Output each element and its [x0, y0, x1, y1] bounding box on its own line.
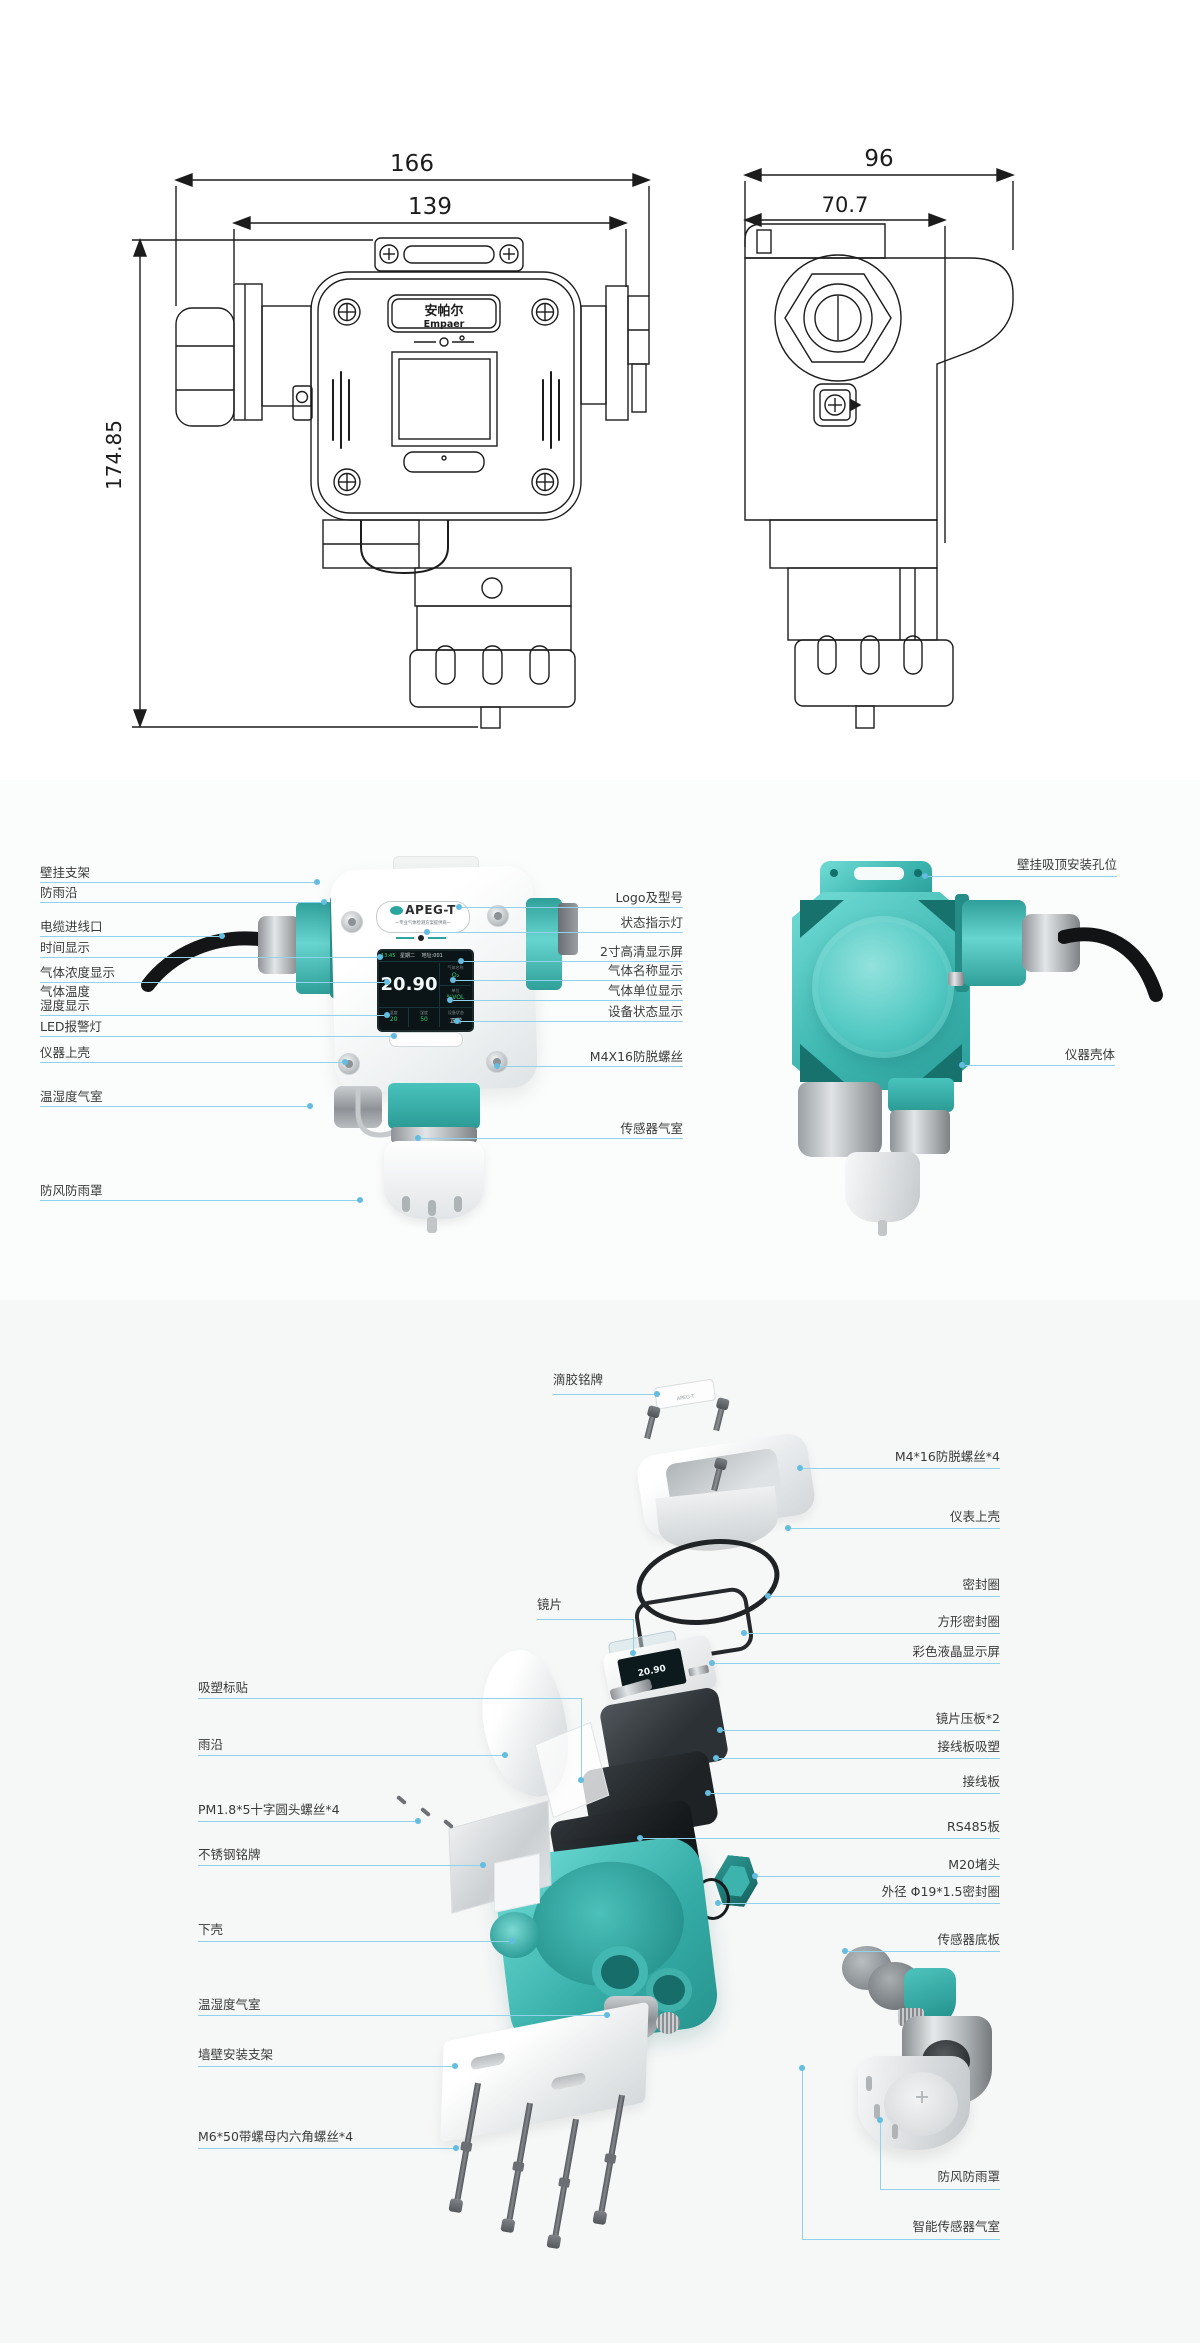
callout-board-blister: 接线板吸塑	[740, 1740, 1000, 1754]
callout-dot	[219, 933, 225, 939]
callout-line	[803, 1468, 1000, 1469]
callout-gas-name-display: 气体名称显示	[443, 964, 683, 978]
display-connector	[688, 1665, 709, 1677]
bracket-slot	[471, 2052, 505, 2071]
callout-th-chamber: 温湿度气室	[40, 1090, 103, 1104]
mount-hole	[830, 869, 838, 877]
callout-dot	[752, 1873, 758, 1879]
callout-dot	[959, 1062, 965, 1068]
callout-m4-screws: M4*16防脱螺丝*4	[740, 1450, 1000, 1464]
callout-line	[198, 2148, 459, 2149]
callout-dot	[452, 2063, 458, 2069]
callout-gas-unit-display: 气体单位显示	[443, 984, 683, 998]
callout-line	[456, 980, 683, 981]
callout-led-alarm: LED报警灯	[40, 1020, 102, 1034]
callout-line	[198, 1698, 582, 1699]
callout-dot	[342, 1059, 348, 1065]
callout-dot	[502, 1752, 508, 1758]
cover-slot	[892, 2124, 898, 2139]
screen-temp-value: 20	[379, 1016, 408, 1023]
callout-dot	[321, 899, 327, 905]
callout-dot	[604, 2012, 610, 2018]
callout-dot	[480, 1862, 486, 1868]
callout-lower-shell: 下壳	[198, 1923, 223, 1937]
callout-lens: 镜片	[537, 1598, 562, 1612]
callout-line	[643, 1838, 1000, 1839]
callout-dot	[391, 1033, 397, 1039]
callout-line	[965, 1065, 1115, 1066]
callout-cable-entry: 电缆进线口	[40, 920, 103, 934]
cover-slot	[866, 2076, 872, 2091]
product-documentation-page: 166 139 174.85 96 70.7 安帕尔 Empaer APEG-T…	[0, 0, 1200, 2343]
back-cover-circle	[812, 916, 954, 1058]
callout-meter-upper-shell: 仪表上壳	[740, 1510, 1000, 1524]
callout-line	[791, 1528, 1000, 1529]
callout-dot	[447, 997, 453, 1003]
callout-lens-plates: 镜片压板*2	[740, 1712, 1000, 1726]
callout-lcd: 彩色液晶显示屏	[740, 1645, 1000, 1659]
callout-line	[198, 2015, 610, 2016]
callout-m6-screws: M6*50带螺母内六角螺丝*4	[198, 2130, 353, 2144]
callout-line	[198, 1755, 508, 1756]
callout-line	[802, 2068, 803, 2239]
back-sensor-collar	[888, 1078, 954, 1112]
front-view-drawing	[176, 238, 649, 728]
status-led	[418, 935, 424, 941]
callout-dot	[415, 1135, 421, 1141]
callout-line	[198, 1821, 421, 1822]
callout-line	[719, 1758, 1000, 1759]
callout-hd-screen: 2寸高清显示屏	[443, 945, 683, 959]
callout-dot	[384, 1012, 390, 1018]
callout-dot	[357, 1197, 363, 1203]
callout-line	[802, 2239, 1000, 2240]
callout-instrument-housing: 仪器壳体	[895, 1048, 1115, 1062]
back-connector	[962, 900, 1026, 986]
callout-dot	[384, 979, 390, 985]
screen-main-value: 20.90	[379, 963, 439, 1007]
callout-dot	[654, 1391, 660, 1397]
cable-left	[140, 910, 270, 1000]
callout-line	[747, 1633, 1000, 1634]
dim-96: 96	[864, 146, 893, 172]
callout-time-display: 时间显示	[40, 941, 90, 955]
callout-rain-lip: 防雨沿	[40, 886, 78, 900]
callout-line	[711, 1793, 1000, 1794]
callout-dot	[578, 1777, 584, 1783]
callout-line	[40, 1106, 313, 1107]
shield-stem	[427, 1217, 437, 1233]
lower-label-pill	[389, 1032, 463, 1047]
callout-line	[40, 936, 225, 937]
callout-line	[460, 1021, 683, 1022]
callout-steel-nameplate: 不锈钢铭牌	[198, 1848, 261, 1862]
callout-dot	[715, 1900, 721, 1906]
wind-cover-part	[858, 2056, 970, 2150]
callout-rs485: RS485板	[740, 1820, 1000, 1834]
callout-line	[723, 1730, 1000, 1731]
callout-sensor-chamber: 传感器气室	[443, 1122, 683, 1136]
callout-line	[198, 1941, 515, 1942]
callout-square-seal: 方形密封圈	[740, 1615, 1000, 1629]
screen-hum-value: 50	[409, 1016, 438, 1023]
callout-d19-seal: 外径 Φ19*1.5密封圈	[740, 1885, 1000, 1899]
dim-70-7: 70.7	[822, 193, 869, 217]
callout-dot	[456, 904, 462, 910]
callout-line	[40, 957, 383, 958]
brand-logo-icon	[390, 906, 403, 915]
lower-shell-boss	[592, 1946, 648, 1998]
brand-name-cn: 安帕尔	[424, 303, 463, 319]
callout-seal-ring: 密封圈	[740, 1578, 1000, 1592]
callout-pm-screws: PM1.8*5十字圆头螺丝*4	[198, 1803, 340, 1817]
callout-line	[40, 1062, 348, 1063]
callout-dot	[424, 929, 430, 935]
callout-dot	[705, 1790, 711, 1796]
callout-line	[40, 1200, 363, 1201]
white-sheet-part	[494, 1853, 540, 1913]
back-sensor-ring	[890, 1110, 950, 1154]
callout-dot	[877, 2117, 883, 2123]
corner-screw	[338, 1053, 360, 1075]
callout-line	[40, 982, 390, 983]
callout-logo-model: Logo及型号	[443, 891, 683, 905]
shield-slot	[402, 1196, 410, 1212]
dimension-drawing: 166 139 174.85 96 70.7 安帕尔 Empaer	[0, 0, 1200, 780]
shield-slot	[454, 1196, 462, 1212]
callout-line	[40, 902, 327, 903]
callout-line	[198, 2066, 458, 2067]
callout-dot	[637, 1835, 643, 1841]
callout-dot	[717, 1727, 723, 1733]
callout-line	[721, 1903, 1000, 1904]
screen-time: 13:45	[381, 953, 395, 959]
cover-cross	[921, 2091, 923, 2103]
callout-dot	[922, 873, 928, 879]
callout-line	[581, 1698, 582, 1780]
callout-line	[848, 1951, 1000, 1952]
dim-166: 166	[390, 151, 434, 177]
callout-line	[928, 876, 1117, 877]
callout-dot	[709, 1660, 715, 1666]
callout-dot	[785, 1525, 791, 1531]
callout-line	[633, 1619, 634, 1652]
callout-dot	[765, 1593, 771, 1599]
grounding-screw	[948, 972, 964, 986]
callout-line	[40, 1015, 390, 1016]
callout-device-status-display: 设备状态显示	[443, 1005, 683, 1019]
callout-dot	[799, 2065, 805, 2071]
callout-dot	[377, 954, 383, 960]
back-sensor-shield	[845, 1152, 920, 1222]
callout-upper-shell: 仪器上壳	[40, 1046, 90, 1060]
callout-dot	[450, 977, 456, 983]
bracket-slot	[551, 2072, 585, 2091]
dim-174-85: 174.85	[102, 420, 126, 490]
callout-wind-rain-cover: 防风防雨罩	[40, 1184, 103, 1198]
callout-m4x16-screw: M4X16防脱螺丝	[443, 1050, 683, 1064]
callout-blister-sticker: 吸塑标贴	[198, 1681, 248, 1695]
led-wing	[396, 937, 414, 939]
callout-terminal-board: 接线板	[740, 1775, 1000, 1789]
callout-line	[464, 961, 683, 962]
callout-line	[880, 2189, 1000, 2190]
callout-dot	[842, 1948, 848, 1954]
callout-dot	[415, 1818, 421, 1824]
callout-smart-sensor: 智能传感器气室	[740, 2220, 1000, 2234]
back-shield-stem	[878, 1220, 887, 1236]
callout-dot	[453, 2145, 459, 2151]
callout-line	[40, 882, 320, 883]
callout-humidity-display: 湿度显示	[40, 999, 90, 1013]
side-view-drawing	[745, 224, 1013, 728]
callout-status-indicator: 状态指示灯	[443, 916, 683, 930]
knurled-disc	[656, 2012, 680, 2034]
callout-dot	[314, 879, 320, 885]
callout-line	[553, 1394, 660, 1395]
callout-dot	[509, 1938, 515, 1944]
callout-mounting-holes: 壁挂吸顶安装孔位	[897, 858, 1117, 872]
callout-wall-bracket: 壁挂支架	[40, 866, 90, 880]
callout-dot	[454, 1018, 460, 1024]
callout-rain-edge: 雨沿	[198, 1738, 223, 1752]
mini-screen-value: 20.90	[637, 1664, 667, 1679]
back-sensor-chrome	[798, 1082, 882, 1157]
nameplate-mini-text: APEG-T	[676, 1394, 695, 1403]
led-wing	[428, 937, 446, 939]
corner-screw	[341, 911, 363, 933]
callout-line	[421, 1138, 683, 1139]
callout-line	[462, 907, 683, 908]
callout-line	[771, 1596, 1000, 1597]
callout-wall-bracket-part: 墙壁安装支架	[198, 2048, 273, 2062]
callout-dot	[494, 1063, 500, 1069]
callout-line	[500, 1066, 683, 1067]
callout-dot	[630, 1650, 636, 1656]
callout-dot	[713, 1755, 719, 1761]
callout-line	[453, 1000, 683, 1001]
callout-concentration-display: 气体浓度显示	[40, 966, 115, 980]
callout-dot	[797, 1465, 803, 1471]
callout-line	[758, 1876, 1000, 1877]
technical-drawings-section: 166 139 174.85 96 70.7 安帕尔 Empaer	[0, 0, 1200, 780]
brand-name-en: Empaer	[424, 319, 465, 330]
callout-line	[715, 1663, 1000, 1664]
shield-slot	[428, 1200, 436, 1216]
cable-gland-left	[258, 916, 300, 974]
callout-th-chamber-part: 温湿度气室	[198, 1998, 261, 2012]
callout-m20-plug: M20堵头	[740, 1858, 1000, 1872]
callout-line	[537, 1619, 634, 1620]
side-connector-left	[296, 902, 334, 994]
callout-sensor-base: 传感器底板	[740, 1933, 1000, 1947]
dim-139: 139	[408, 194, 452, 220]
lower-shell-port	[490, 1912, 540, 1958]
callout-wind-cover-part: 防风防雨罩	[740, 2170, 1000, 2184]
callout-line	[40, 1036, 397, 1037]
screen-addr: 地址:001	[422, 953, 443, 959]
callout-line	[430, 932, 683, 933]
callout-line	[880, 2120, 881, 2189]
callout-line	[198, 1865, 486, 1866]
cable-right	[1058, 915, 1168, 1005]
screen-week: 星期二	[400, 953, 415, 959]
callout-dot	[307, 1103, 313, 1109]
callout-dot	[741, 1630, 747, 1636]
callout-epoxy-nameplate: 滴胶铭牌	[553, 1373, 603, 1387]
